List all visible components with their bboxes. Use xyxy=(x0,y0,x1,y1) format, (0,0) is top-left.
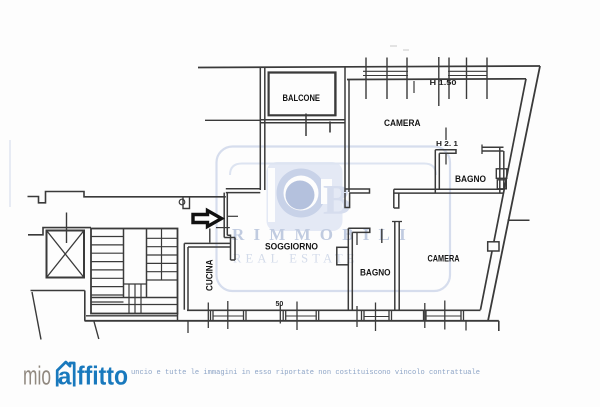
svg-text:B: B xyxy=(323,178,351,224)
svg-text:CAMERA: CAMERA xyxy=(384,118,421,128)
svg-text:CAMERA: CAMERA xyxy=(428,253,460,263)
svg-text:ffitto: ffitto xyxy=(77,363,128,391)
svg-text:BAGNO: BAGNO xyxy=(360,268,391,278)
svg-text:SOGGIORNO: SOGGIORNO xyxy=(265,241,318,251)
svg-text:a: a xyxy=(58,364,72,391)
svg-text:BALCONE: BALCONE xyxy=(283,93,321,103)
svg-text:uncio e tutte le immagini in e: uncio e tutte le immagini in esso riport… xyxy=(131,369,480,377)
svg-text:mio: mio xyxy=(23,363,51,391)
svg-text:H 2. 1: H 2. 1 xyxy=(436,141,458,148)
svg-text:BAGNO: BAGNO xyxy=(455,174,486,184)
svg-text:CUCINA: CUCINA xyxy=(205,259,215,291)
svg-text:RIMMOBILI: RIMMOBILI xyxy=(232,225,415,244)
svg-text:50: 50 xyxy=(276,301,284,308)
svg-text:H 1.50: H 1.50 xyxy=(430,80,457,87)
svg-text:REAL ESTATE: REAL ESTATE xyxy=(233,252,359,266)
